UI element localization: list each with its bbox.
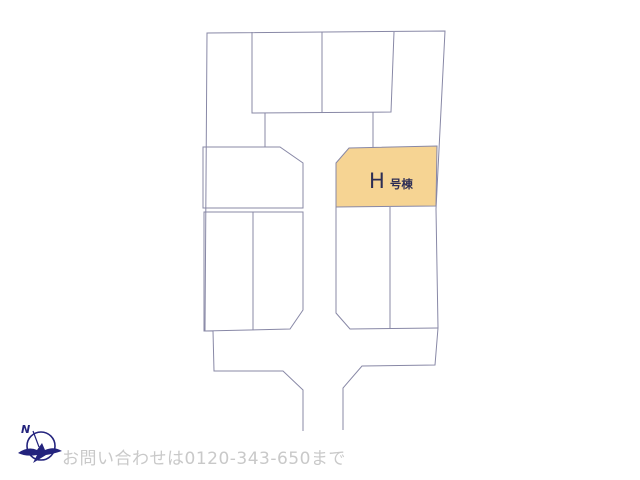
compass-icon: N [18, 423, 62, 463]
site-plan-image: H 号棟 N お問い合わせは0120-343-650まで [0, 0, 640, 480]
lot-h-label-suffix: 号棟 [390, 177, 413, 191]
plan-shapes [203, 31, 445, 431]
outer-boundary [205, 31, 445, 431]
contact-text: お問い合わせは0120-343-650まで [62, 444, 346, 469]
site-plan-svg: H 号棟 N [0, 0, 640, 480]
mid-left-lot [203, 147, 303, 208]
compass-north-label: N [21, 423, 30, 436]
top-lots-outline [252, 32, 394, 113]
lot-h-label-main: H [369, 169, 385, 193]
lower-right-lot [336, 207, 438, 329]
